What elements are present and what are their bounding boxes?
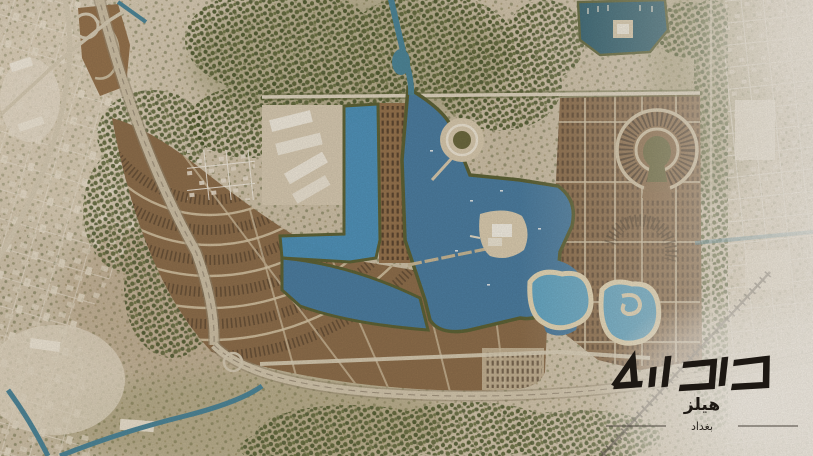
logo-line1: هيلز (683, 395, 720, 415)
logo-line2: بغداد (691, 420, 713, 433)
masterplan-map: هيلز بغداد (0, 0, 813, 456)
